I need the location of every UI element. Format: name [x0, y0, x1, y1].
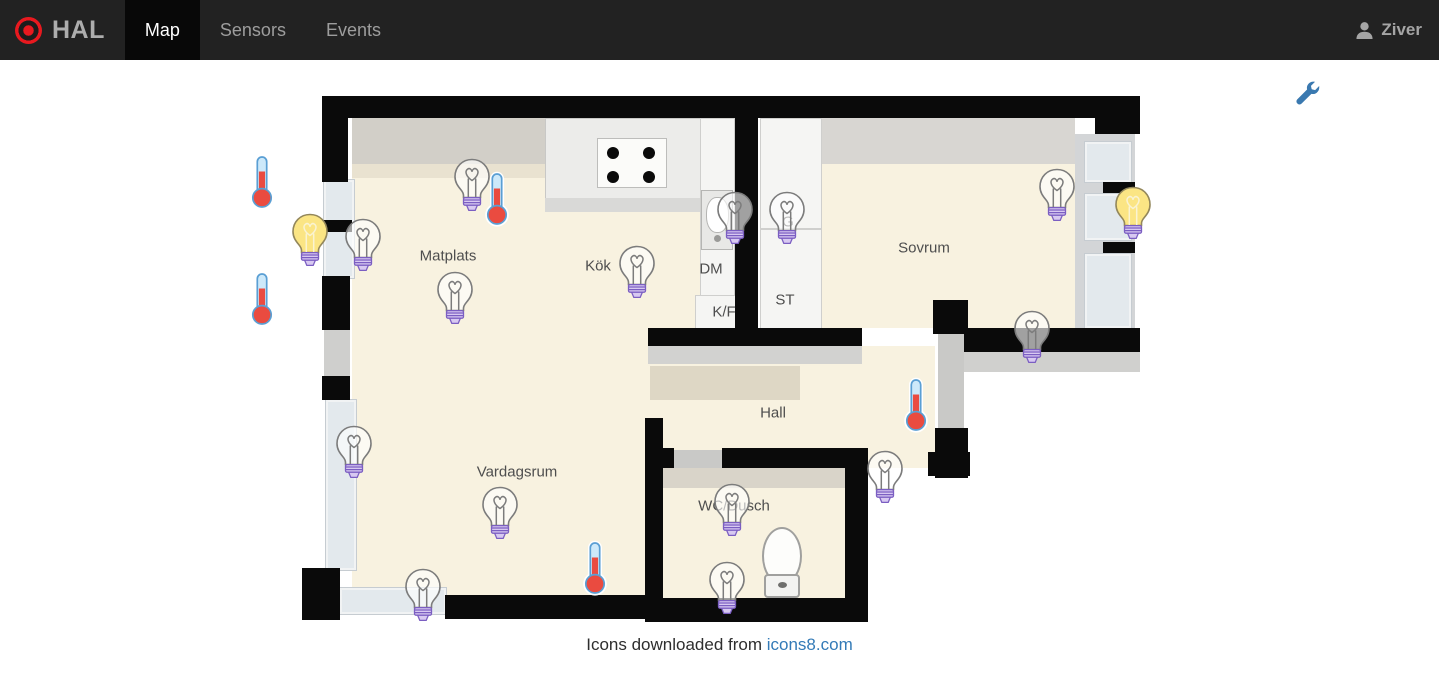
main-nav: MapSensorsEvents	[125, 0, 401, 60]
stove-burner	[607, 171, 619, 183]
room-label-matplats: Matplats	[420, 248, 477, 265]
bulb-icon[interactable]	[712, 483, 752, 537]
bulb-icon[interactable]	[707, 561, 747, 615]
bulb-icon[interactable]	[480, 486, 520, 540]
room-label-kf: K/F	[712, 304, 735, 321]
wall-right-bar-2	[1103, 242, 1135, 253]
stove-burner	[643, 171, 655, 183]
wall-face-sovrum	[822, 118, 1075, 164]
credit-text: Icons downloaded from	[586, 635, 767, 654]
bulb-icon[interactable]	[1113, 186, 1153, 240]
icons8-link[interactable]: icons8.com	[767, 635, 853, 654]
stove-burner	[607, 147, 619, 159]
room-label-st: ST	[775, 292, 794, 309]
floor-shadow-matplats	[352, 164, 545, 178]
stove-burner	[643, 147, 655, 159]
wall-bottom-wc	[650, 598, 868, 622]
room-label-vardagsrum: Vardagsrum	[477, 464, 558, 481]
nav-tab-events-link[interactable]: Events	[306, 0, 401, 60]
bulb-icon[interactable]	[1037, 168, 1077, 222]
wall-face-matplats	[352, 118, 545, 164]
app-logo[interactable]: HAL	[0, 0, 125, 60]
wall-sovrum-door-n	[933, 300, 968, 334]
floorplan: MatplatsKökDMK/FSTGSovrumHallVardagsrumW…	[0, 60, 1439, 675]
room-label-hall: Hall	[760, 405, 786, 422]
user-menu[interactable]: Ziver	[1355, 0, 1439, 60]
bulb-icon[interactable]	[435, 271, 475, 325]
wall-left-1	[322, 96, 348, 182]
wall-sovrum-door-foot	[928, 452, 970, 476]
wall-right-corner	[1095, 96, 1140, 134]
wall-wc-top	[722, 448, 858, 468]
bulb-icon[interactable]	[767, 191, 807, 245]
thermometer-icon[interactable]	[484, 171, 510, 227]
user-icon	[1355, 21, 1374, 40]
floor-map: MatplatsKökDMK/FSTGSovrumHallVardagsrumW…	[0, 60, 1439, 675]
window-right-1	[1085, 142, 1131, 182]
wall-bottom-vardagsrum	[445, 595, 650, 619]
floor-shadow-hall	[650, 366, 800, 400]
thermometer-icon[interactable]	[249, 154, 275, 210]
hal-logo-icon	[15, 17, 42, 44]
bulb-icon[interactable]	[1012, 310, 1052, 364]
nav-tab-sensors[interactable]: Sensors	[200, 0, 306, 60]
nav-tab-events[interactable]: Events	[306, 0, 401, 60]
top-nav: HAL MapSensorsEvents Ziver	[0, 0, 1439, 60]
bulb-icon[interactable]	[865, 450, 905, 504]
nav-tab-map-link[interactable]: Map	[125, 0, 200, 60]
thermometer-icon[interactable]	[249, 271, 275, 327]
room-label-sovrum: Sovrum	[898, 240, 950, 257]
wc-door	[674, 450, 722, 468]
bulb-icon[interactable]	[343, 218, 383, 272]
brand-name: HAL	[52, 16, 105, 45]
thermometer-icon[interactable]	[582, 540, 608, 596]
thermometer-icon[interactable]	[903, 377, 929, 433]
bulb-icon[interactable]	[715, 191, 755, 245]
room-label-kok: Kök	[585, 258, 611, 275]
nav-tab-map[interactable]: Map	[125, 0, 200, 60]
wall-hall-top-face	[648, 346, 862, 364]
bulb-icon[interactable]	[334, 425, 374, 479]
wall-left-2	[322, 276, 350, 330]
wall-face-wc	[662, 468, 845, 488]
wall-hall-top	[648, 328, 862, 346]
bulb-icon[interactable]	[290, 213, 330, 267]
wall-left-gray	[324, 330, 350, 378]
bulb-icon[interactable]	[617, 245, 657, 299]
icons-credit: Icons downloaded from icons8.com	[0, 635, 1439, 655]
user-name: Ziver	[1381, 20, 1422, 40]
wrench-icon[interactable]	[1293, 80, 1321, 108]
wall-wc-top-stub	[658, 448, 674, 468]
nav-tab-sensors-link[interactable]: Sensors	[200, 0, 306, 60]
toilet-button	[778, 582, 787, 588]
sovrum-door	[938, 334, 964, 430]
room-label-dm: DM	[699, 261, 722, 278]
wall-left-3	[322, 376, 350, 400]
bulb-icon[interactable]	[403, 568, 443, 622]
kitchen-counter-face	[545, 198, 702, 212]
wall-left-corner	[302, 568, 340, 620]
window-right-3	[1085, 254, 1131, 328]
